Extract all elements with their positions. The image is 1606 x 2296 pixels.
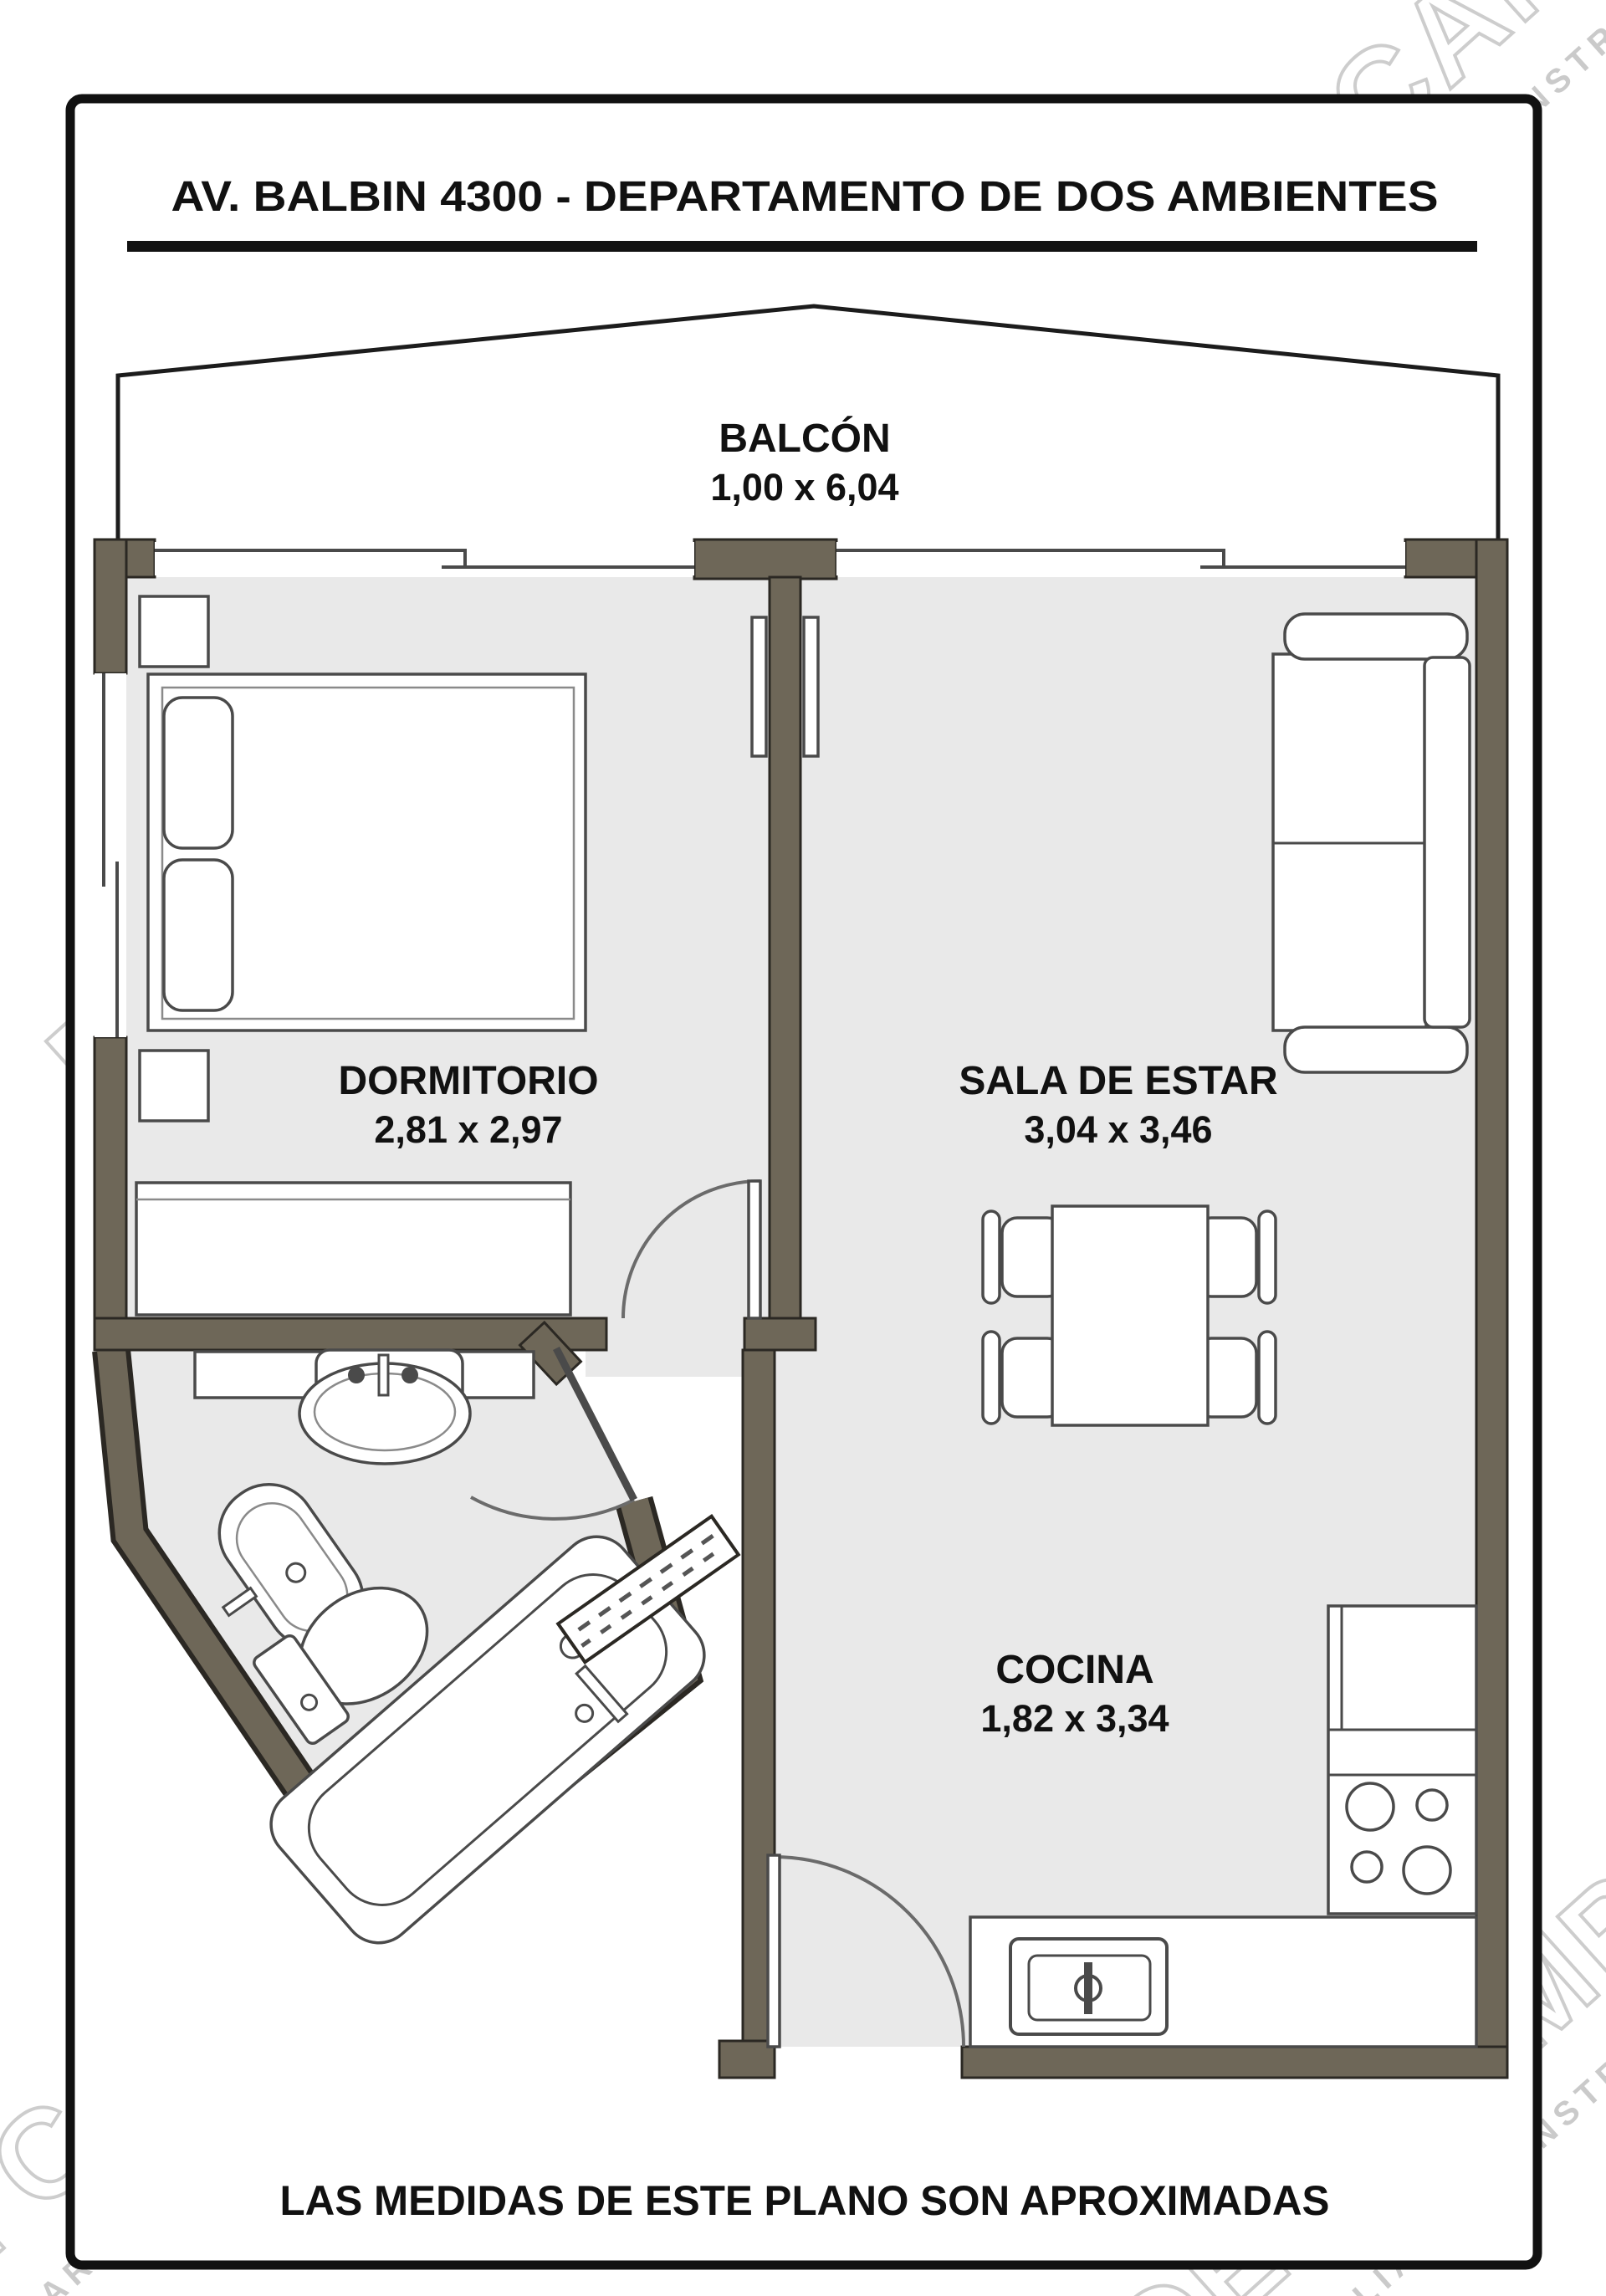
sliding-door-panel-dorm <box>752 617 766 756</box>
closet <box>136 1183 570 1315</box>
nightstand-top <box>140 596 208 667</box>
wall-divider-dorm-sala <box>770 577 800 1318</box>
sofa-armrest-top <box>1285 614 1467 659</box>
dining-table <box>1052 1206 1208 1425</box>
sofa-backrest <box>1424 657 1470 1027</box>
nightstand-bottom <box>140 1051 208 1121</box>
chair-backrest <box>983 1211 1000 1303</box>
floor-plan-page: DEL CAMPO INMOBILIARIA CONSTRUCTORA DEL … <box>0 0 1606 2296</box>
room-label-sala: SALA DE ESTAR <box>959 1059 1277 1103</box>
wall-left-lower <box>95 1037 126 1350</box>
sink-faucet <box>379 1355 388 1395</box>
pillow-bottom <box>164 860 233 1010</box>
footer-disclaimer: LAS MEDIDAS DE ESTE PLANO SON APROXIMADA… <box>280 2177 1330 2224</box>
room-label-dormitorio: DORMITORIO <box>338 1059 598 1103</box>
sink-tap-right <box>401 1367 418 1383</box>
room-dim-dormitorio: 2,81 x 2,97 <box>374 1108 562 1151</box>
wall-top-center-pier <box>694 539 836 579</box>
window-dorm-north <box>155 542 694 575</box>
pillow-top <box>164 698 233 848</box>
chair-backrest <box>1259 1211 1276 1303</box>
sofa-armrest-bottom <box>1285 1027 1467 1072</box>
room-dim-cocina: 1,82 x 3,34 <box>980 1697 1169 1740</box>
window-dorm-west <box>95 673 126 1037</box>
entry-door-leaf <box>768 1855 780 2047</box>
room-label-balcon: BALCÓN <box>719 415 890 461</box>
window-sala-north <box>836 542 1405 575</box>
sink-tap-left <box>348 1367 365 1383</box>
page-title: AV. BALBIN 4300 - DEPARTAMENTO DE DOS AM… <box>171 172 1439 220</box>
dorm-door-leaf <box>749 1181 760 1318</box>
floor-plan-canvas: DEL CAMPO INMOBILIARIA CONSTRUCTORA DEL … <box>0 0 1606 2296</box>
wall-divider-foot <box>744 1318 816 1350</box>
wall-entry-foot <box>719 2041 775 2078</box>
room-label-cocina: COCINA <box>995 1648 1153 1692</box>
chair-backrest <box>983 1332 1000 1424</box>
wall-right <box>1476 539 1507 2078</box>
kitchen-sink-faucet <box>1084 1962 1092 2014</box>
sliding-door-panel-sala <box>804 617 818 756</box>
wall-left-upper <box>95 539 126 673</box>
title-underline <box>127 241 1477 252</box>
room-dim-sala: 3,04 x 3,46 <box>1024 1108 1212 1151</box>
chair-backrest <box>1259 1332 1276 1424</box>
room-dim-balcon: 1,00 x 6,04 <box>710 466 898 509</box>
wall-bottom <box>962 2047 1507 2078</box>
